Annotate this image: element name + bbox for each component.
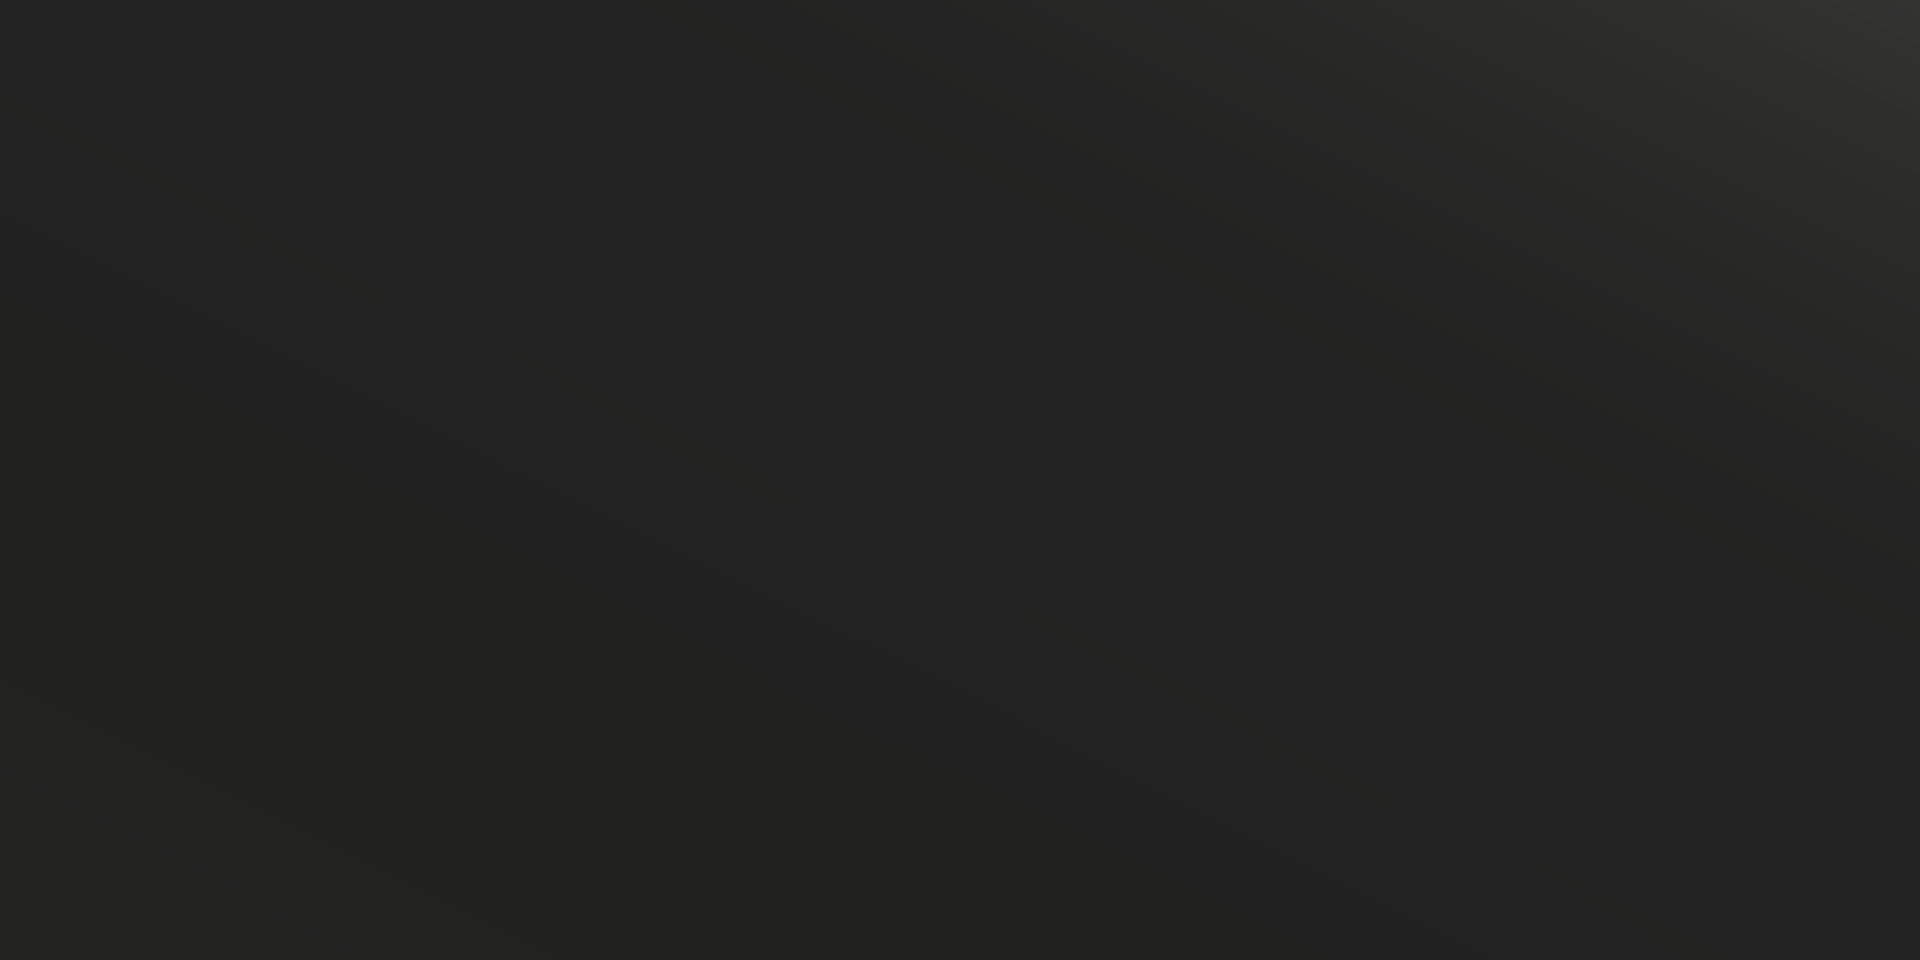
aerial-masterplan-render [0, 0, 1920, 960]
sunlight-overlay [0, 0, 1920, 960]
aerial-site-plan-svg [0, 0, 1920, 960]
